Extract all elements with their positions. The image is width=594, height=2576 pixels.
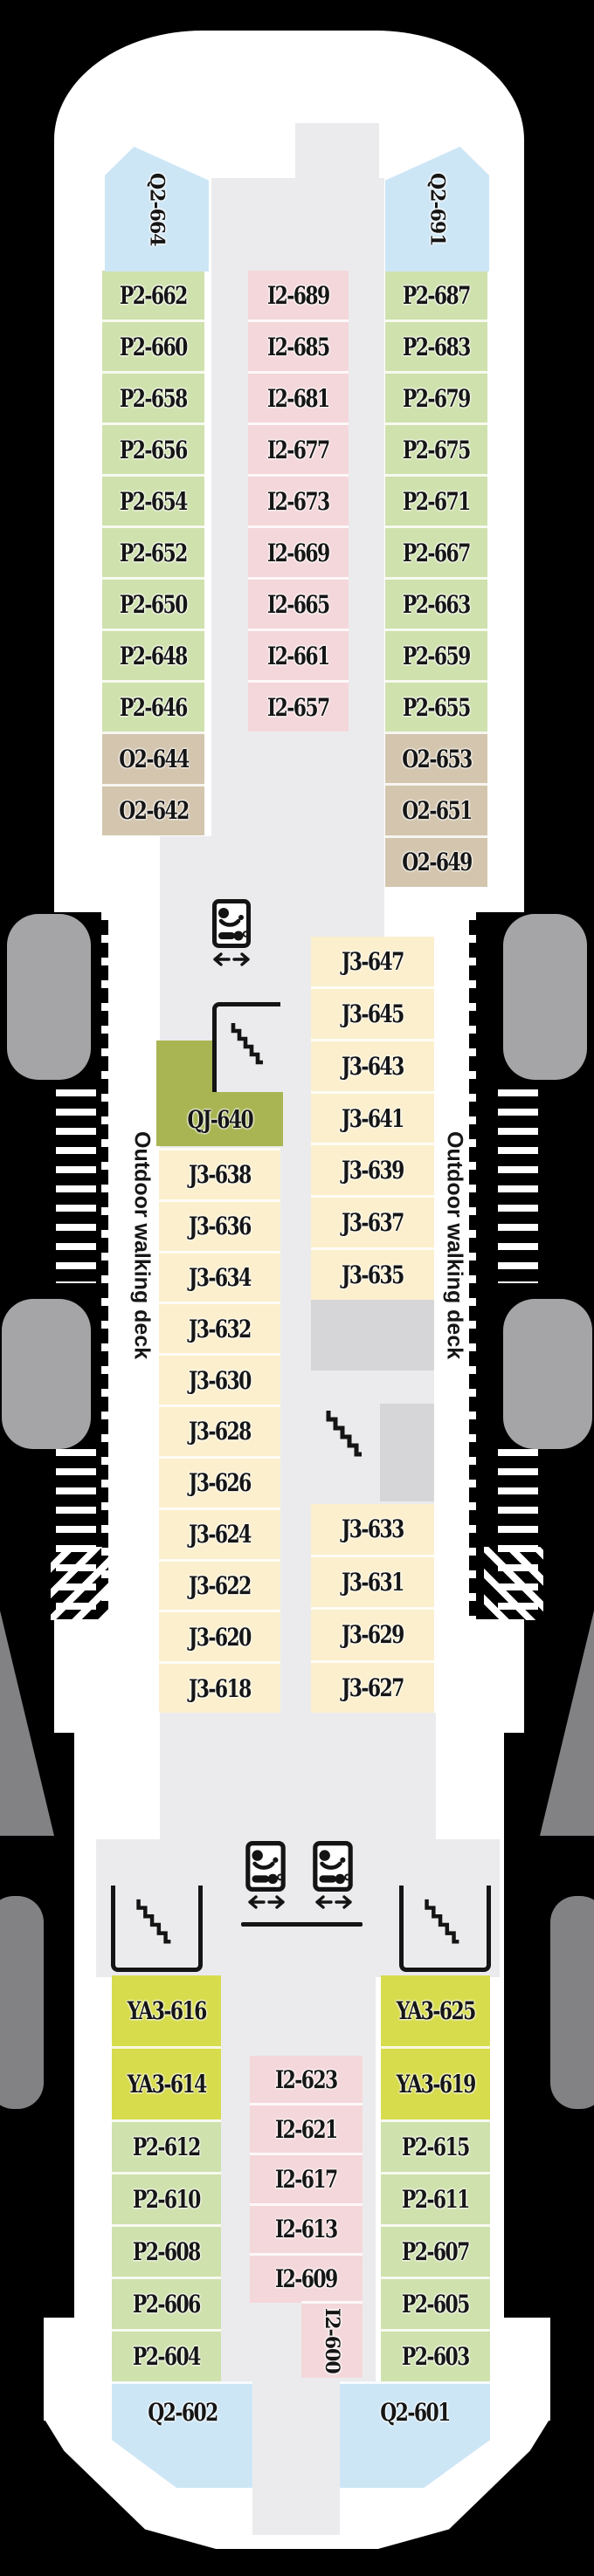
sponson-blob-stbd [550,1896,594,2109]
lifeboat-port-1 [7,914,91,1080]
cabin-label: P2-652 [120,539,187,567]
davit-slits-stbd-1 [498,1089,538,1283]
cabin-label: P2-683 [403,333,470,361]
cabin-YA3-619[interactable]: YA3-619 [381,2046,490,2119]
davit-arms-stbd [484,1547,543,1620]
cabin-I2-661[interactable]: I2-661 [248,629,349,680]
cabin-column-mid-stbd-b: J3-633J3-631J3-629J3-627 [311,1504,434,1713]
cabin-label: J3-626 [189,1468,251,1497]
cabin-label: Q2-601 [380,2398,450,2427]
cabin-I2-623[interactable]: I2-623 [250,2056,363,2103]
lifeboat-stbd-2 [503,1299,592,1449]
stairs-icon [421,1896,463,1950]
cabin-column-fwd-stbd-tan: O2-653O2-651O2-649 [385,732,487,887]
davit-slits-port-1 [56,1089,96,1283]
cabin-label: YA3-625 [396,1996,474,2025]
cabin-I2-677[interactable]: I2-677 [248,422,349,474]
corridor-stern [252,2381,340,2535]
cabin-P2-615[interactable]: P2-615 [381,2119,490,2172]
cabin-J3-626[interactable]: J3-626 [159,1456,280,1508]
cabin-label: P2-656 [120,436,187,464]
cabin-label: P2-671 [403,487,470,516]
cabin-label: J3-624 [189,1520,251,1549]
cabin-J3-634[interactable]: J3-634 [159,1251,280,1302]
restroom-icon [245,1840,287,1893]
structure-block-lower [380,1404,434,1501]
walkway-label-stbd: Outdoor walking deck [439,1131,470,1607]
cabin-label: P2-604 [133,2342,200,2371]
cabin-YA3-616[interactable]: YA3-616 [112,1975,221,2046]
cabin-J3-618[interactable]: J3-618 [159,1661,280,1713]
cabin-label: J3-630 [189,1366,251,1395]
cabin-O2-651[interactable]: O2-651 [385,783,487,835]
cabin-J3-627[interactable]: J3-627 [311,1660,434,1714]
cabin-label: P2-658 [120,384,187,413]
stairs-icon [323,1407,365,1463]
cabin-P2-654[interactable]: P2-654 [102,474,204,526]
cabin-label: I2-617 [275,2165,337,2194]
cabin-I2-681[interactable]: I2-681 [248,371,349,422]
left-right-arrows-icon [314,1894,354,1910]
cabin-P2-607[interactable]: P2-607 [381,2224,490,2277]
cabin-J3-632[interactable]: J3-632 [159,1302,280,1353]
cabin-label: P2-650 [120,590,187,619]
cabin-label: I2-661 [267,642,329,670]
cabin-label: P2-605 [402,2290,469,2318]
cabin-J3-643[interactable]: J3-643 [311,1039,434,1091]
cabin-label: QJ-640 [187,1105,252,1134]
cabin-label: I2-677 [267,436,329,464]
cabin-label: J3-635 [342,1261,404,1289]
cabin-label: P2-608 [133,2237,200,2266]
cabin-label: P2-662 [120,281,187,310]
cabin-column-fwd-center: I2-689I2-685I2-681I2-677I2-673I2-669I2-6… [248,271,349,732]
cabin-label: P2-606 [133,2290,200,2318]
davit-notch-edge-stbd [469,912,476,1619]
cabin-label: YA3-619 [396,2070,474,2099]
corridor-forward-wide [160,836,384,939]
cabin-J3-630[interactable]: J3-630 [159,1353,280,1405]
deck-plan: Outdoor walking deck Outdoor walking dec… [0,0,594,2576]
cabin-label: P2-679 [403,384,470,413]
cabin-label: P2-611 [402,2185,469,2214]
cabin-column-aft-port-ya: YA3-616YA3-614 [112,1975,221,2119]
cabin-label: P2-667 [403,539,470,567]
cabin-QJ-640-annex [156,1041,212,1093]
cabin-I2-657[interactable]: I2-657 [248,680,349,732]
walkway-label-port: Outdoor walking deck [126,1131,157,1607]
cabin-label: Q2-602 [148,2398,218,2427]
cabin-P2-660[interactable]: P2-660 [102,319,204,371]
cabin-label: P2-607 [402,2237,469,2266]
cabin-label: P2-648 [120,642,187,670]
cabin-column-fwd-port-main: P2-662P2-660P2-658P2-656P2-654P2-652P2-6… [102,271,204,732]
cabin-label: I2-669 [267,539,329,567]
cabin-YA3-625[interactable]: YA3-625 [381,1975,490,2046]
cabin-label: Q2-691 [426,173,449,246]
cabin-J3-624[interactable]: J3-624 [159,1508,280,1559]
cabin-P2-683[interactable]: P2-683 [385,319,487,371]
structure-block-upper [311,1300,434,1370]
restroom-icon [211,898,252,949]
cabin-J3-631[interactable]: J3-631 [311,1555,434,1608]
cabin-label: I2-673 [267,487,329,516]
cabin-P2-663[interactable]: P2-663 [385,577,487,629]
cabin-label: J3-637 [342,1208,404,1237]
cabin-label: J3-641 [342,1104,404,1133]
cabin-I2-621[interactable]: I2-621 [250,2103,363,2153]
cabin-P2-679[interactable]: P2-679 [385,371,487,422]
cabin-label: P2-675 [403,436,470,464]
cabin-label: I2-681 [267,384,329,413]
cabin-I2-600[interactable]: I2-600 [301,2301,363,2378]
cabin-P2-610[interactable]: P2-610 [112,2172,221,2224]
cabin-label: J3-643 [342,1052,404,1081]
cabin-J3-620[interactable]: J3-620 [159,1610,280,1661]
cabin-column-mid-stbd-a: J3-647J3-645J3-643J3-641J3-639J3-637J3-6… [311,937,434,1300]
cabin-P2-655[interactable]: P2-655 [385,680,487,732]
cabin-label: I2-665 [267,590,329,619]
cabin-label: J3-628 [189,1417,251,1446]
cabin-label: I2-600 [321,2308,343,2373]
cabin-label: J3-638 [189,1160,251,1189]
stairwell-enclosure-aft-port [111,1886,203,1972]
cabin-J3-636[interactable]: J3-636 [159,1199,280,1251]
cabin-label: J3-631 [342,1568,404,1597]
cabin-J3-635[interactable]: J3-635 [311,1247,434,1300]
cabin-label: J3-645 [342,999,404,1028]
cabin-label: J3-618 [189,1674,251,1703]
cabin-J3-639[interactable]: J3-639 [311,1143,434,1195]
sponson-wedge-port [0,1611,54,1836]
cabin-label: O2-642 [119,796,189,825]
cabin-label: J3-627 [342,1673,404,1702]
cabin-label: I2-623 [275,2065,337,2094]
cabin-P2-608[interactable]: P2-608 [112,2224,221,2277]
cabin-label: J3-629 [342,1620,404,1649]
cabin-O2-653[interactable]: O2-653 [385,732,487,783]
cabin-label: Q2-664 [146,173,169,246]
cabin-label: I2-609 [275,2264,337,2293]
cabin-J3-647[interactable]: J3-647 [311,937,434,986]
cabin-label: P2-646 [120,693,187,722]
cabin-J3-641[interactable]: J3-641 [311,1091,434,1144]
lifeboat-port-2 [2,1299,91,1449]
lifeboat-stbd-1 [503,914,587,1080]
cabin-label: I2-689 [267,281,329,310]
cabin-P2-675[interactable]: P2-675 [385,422,487,474]
cabin-P2-652[interactable]: P2-652 [102,526,204,577]
stairs-icon [133,1896,175,1950]
cabin-label: YA3-614 [127,2070,205,2099]
cabin-P2-671[interactable]: P2-671 [385,474,487,526]
sponson-wedge-stbd [540,1611,594,1836]
cabin-I2-685[interactable]: I2-685 [248,319,349,371]
cabin-P2-658[interactable]: P2-658 [102,371,204,422]
cabin-label: P2-659 [403,642,470,670]
cabin-QJ-640[interactable]: QJ-640 [156,1092,283,1146]
cabin-label: I2-613 [275,2215,337,2243]
cabin-label: P2-655 [403,693,470,722]
sponson-blob-port [0,1896,44,2109]
cabin-label: I2-621 [275,2115,337,2144]
cabin-J3-637[interactable]: J3-637 [311,1195,434,1247]
cabin-P2-662[interactable]: P2-662 [102,271,204,319]
cabin-label: J3-634 [189,1263,251,1292]
left-right-arrows-icon [211,951,252,967]
stairwell-enclosure-aft-stbd [399,1886,491,1972]
cabin-J3-633[interactable]: J3-633 [311,1504,434,1555]
cabin-P2-603[interactable]: P2-603 [381,2329,490,2381]
cabin-label: O2-644 [119,745,189,773]
cabin-I2-669[interactable]: I2-669 [248,526,349,577]
cabin-label: P2-603 [402,2342,469,2371]
cabin-label: YA3-616 [127,1996,205,2025]
cabin-label: J3-633 [342,1515,404,1543]
cabin-I2-673[interactable]: I2-673 [248,474,349,526]
cabin-P2-646[interactable]: P2-646 [102,680,204,732]
cabin-P2-648[interactable]: P2-648 [102,629,204,680]
cabin-label: P2-654 [120,487,187,516]
cabin-label: O2-649 [402,848,472,876]
cabin-column-aft-center: I2-623I2-621I2-617I2-613I2-609 [250,2056,363,2303]
cabin-O2-644[interactable]: O2-644 [102,732,204,784]
restroom-icon [312,1840,354,1893]
cabin-label: O2-651 [402,796,472,825]
corridor-aft-upper [160,1713,436,1839]
cabin-P2-611[interactable]: P2-611 [381,2172,490,2224]
cabin-label: P2-663 [403,590,470,619]
cabin-P2-612[interactable]: P2-612 [112,2119,221,2172]
cabin-label: J3-647 [342,947,404,976]
cabin-label: J3-632 [189,1315,251,1343]
funnel-casing [295,123,379,179]
cabin-label: J3-636 [189,1212,251,1240]
cabin-P2-659[interactable]: P2-659 [385,629,487,680]
davit-arms-port [51,1547,110,1620]
cabin-label: P2-687 [403,281,470,310]
cabin-J3-645[interactable]: J3-645 [311,986,434,1039]
cabin-I2-609[interactable]: I2-609 [250,2253,363,2303]
cabin-label: P2-615 [402,2133,469,2161]
cabin-J3-628[interactable]: J3-628 [159,1405,280,1456]
cabin-label: J3-620 [189,1623,251,1652]
cabin-P2-667[interactable]: P2-667 [385,526,487,577]
cabin-P2-650[interactable]: P2-650 [102,577,204,629]
cabin-P2-604[interactable]: P2-604 [112,2329,221,2381]
cabin-column-aft-stbd-ya: YA3-625YA3-619 [381,1975,490,2119]
cabin-I2-689[interactable]: I2-689 [248,271,349,319]
cabin-column-fwd-port-tan: O2-644O2-642 [102,732,204,835]
cabin-label: P2-610 [133,2185,200,2214]
left-right-arrows-icon [246,1894,287,1910]
cabin-label: P2-612 [133,2133,200,2161]
cabin-J3-622[interactable]: J3-622 [159,1559,280,1611]
divider-line [241,1922,363,1927]
cabin-I2-665[interactable]: I2-665 [248,577,349,629]
cabin-label: I2-657 [267,693,329,722]
cabin-P2-687[interactable]: P2-687 [385,271,487,319]
cabin-I2-617[interactable]: I2-617 [250,2153,363,2202]
cabin-P2-606[interactable]: P2-606 [112,2277,221,2329]
cabin-column-aft-stbd-green: P2-615P2-611P2-607P2-605P2-603 [381,2119,490,2381]
cabin-O2-642[interactable]: O2-642 [102,784,204,836]
stairs-icon [229,1020,266,1071]
davit-notch-edge-port [101,912,108,1619]
cabin-column-fwd-stbd-main: P2-687P2-683P2-679P2-675P2-671P2-667P2-6… [385,271,487,732]
cabin-O2-649[interactable]: O2-649 [385,835,487,887]
stairwell-enclosure-forward [212,1002,280,1098]
cabin-P2-656[interactable]: P2-656 [102,422,204,474]
cabin-column-aft-port-green: P2-612P2-610P2-608P2-606P2-604 [112,2119,221,2381]
corridor-mid-center [280,1148,311,1713]
cabin-label: P2-660 [120,333,187,361]
cabin-P2-605[interactable]: P2-605 [381,2277,490,2329]
cabin-J3-638[interactable]: J3-638 [159,1148,280,1199]
cabin-column-mid-port: J3-638J3-636J3-634J3-632J3-630J3-628J3-6… [159,1148,280,1713]
cabin-label: I2-685 [267,333,329,361]
cabin-J3-629[interactable]: J3-629 [311,1607,434,1660]
cabin-YA3-614[interactable]: YA3-614 [112,2046,221,2119]
cabin-label: O2-653 [402,745,472,773]
cabin-label: J3-639 [342,1156,404,1185]
cabin-label: J3-622 [189,1571,251,1600]
cabin-I2-613[interactable]: I2-613 [250,2203,363,2253]
